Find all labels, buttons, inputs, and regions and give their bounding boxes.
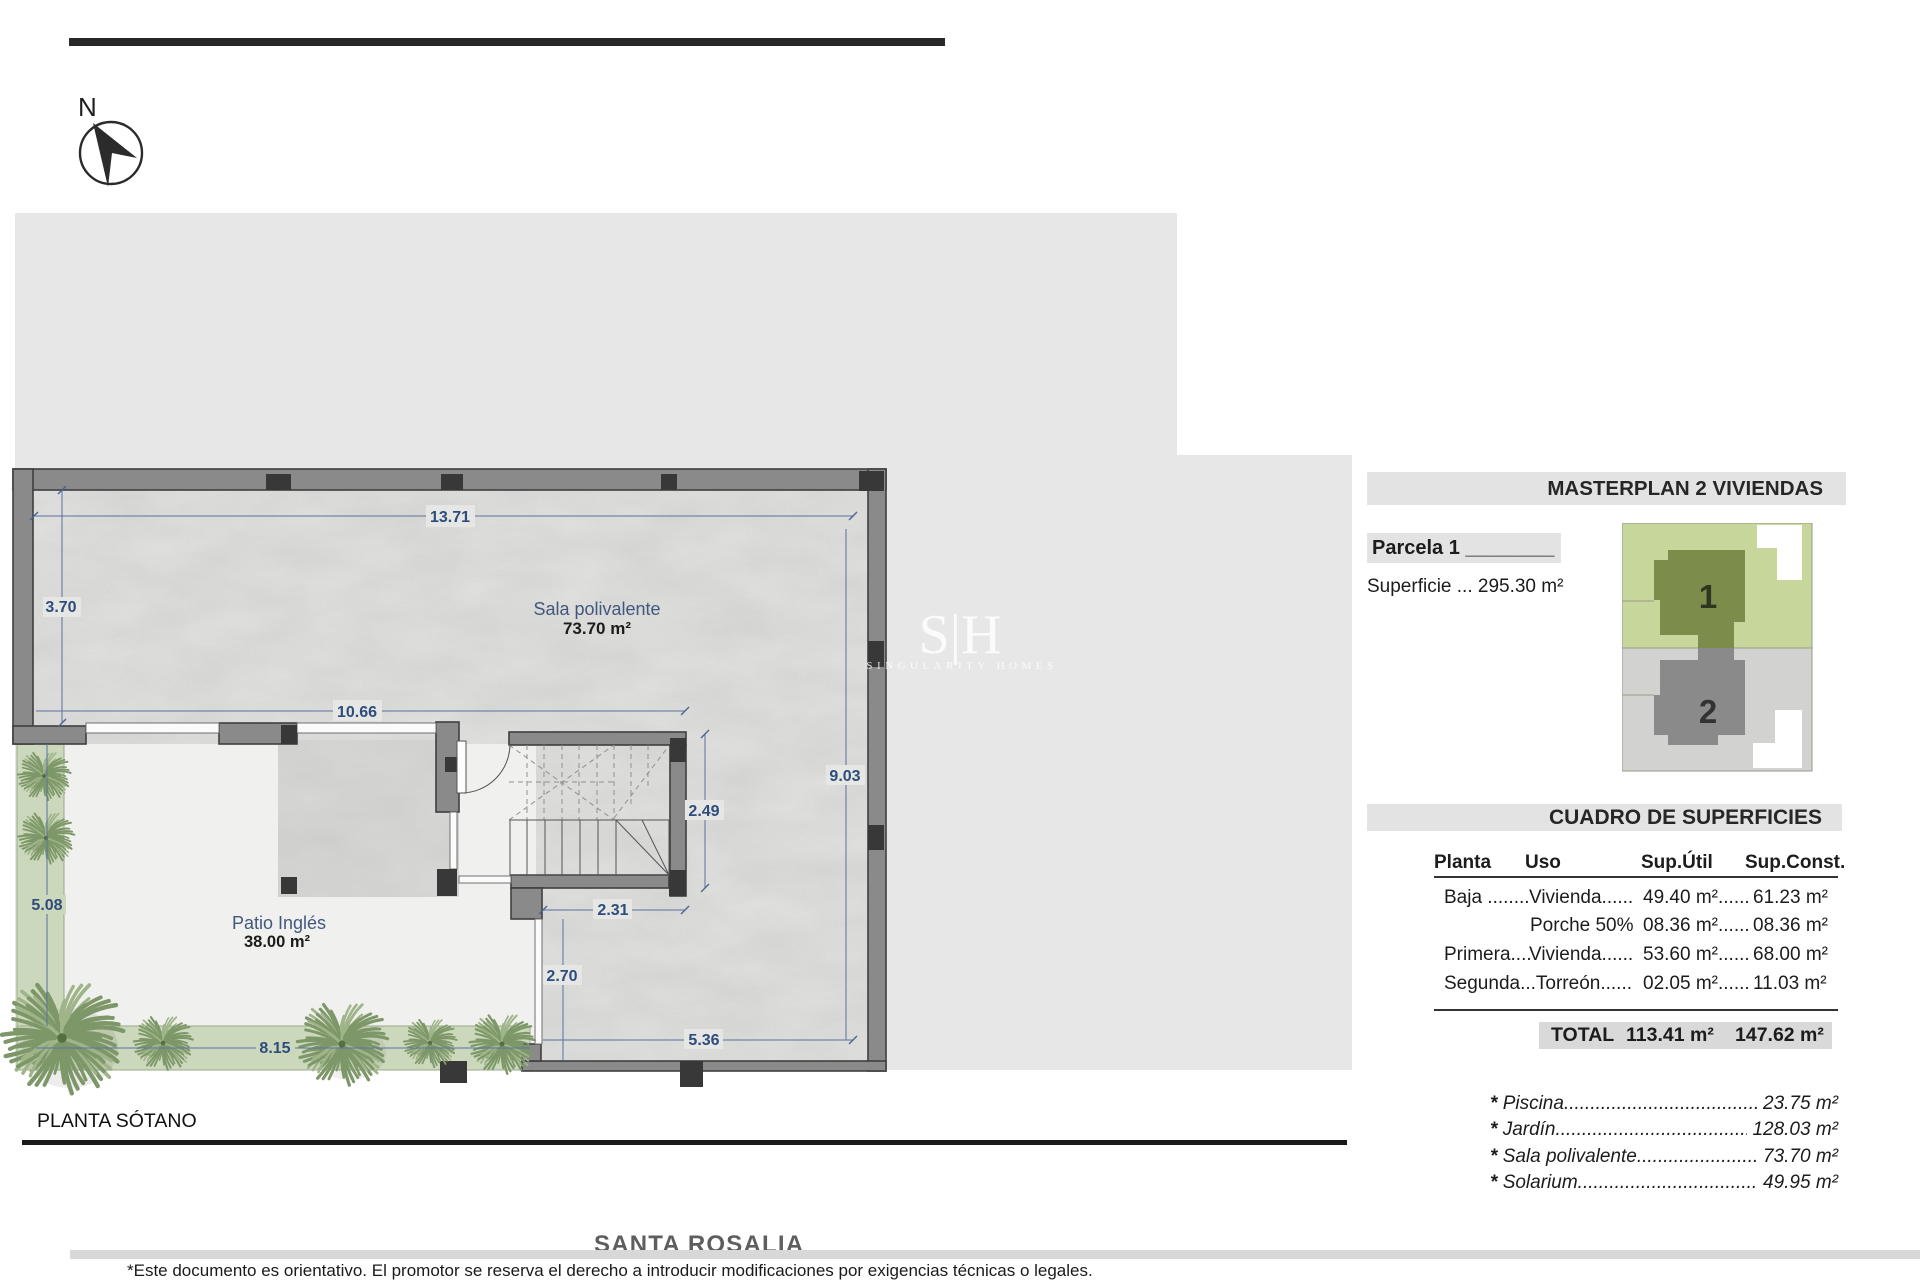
svg-text:1: 1: [1699, 578, 1717, 615]
svg-text:2.49: 2.49: [688, 803, 719, 820]
svg-text:Sala polivalente: Sala polivalente: [533, 599, 660, 619]
svg-text:S|H: S|H: [919, 604, 1002, 666]
svg-text:SINGULARITY HOMES: SINGULARITY HOMES: [866, 660, 1057, 672]
svg-text:3.70: 3.70: [45, 599, 76, 616]
svg-text:10.66: 10.66: [337, 704, 377, 721]
svg-text:8.15: 8.15: [259, 1040, 290, 1057]
svg-text:5.08: 5.08: [31, 897, 62, 914]
svg-text:N: N: [78, 92, 97, 122]
svg-text:2: 2: [1699, 693, 1717, 730]
svg-text:9.03: 9.03: [829, 768, 860, 785]
svg-text:13.71: 13.71: [430, 509, 470, 526]
svg-text:2.70: 2.70: [546, 968, 577, 985]
svg-text:2.31: 2.31: [597, 902, 628, 919]
svg-text:73.70 m²: 73.70 m²: [563, 619, 631, 638]
svg-text:38.00 m²: 38.00 m²: [244, 933, 311, 951]
svg-text:Patio Inglés: Patio Inglés: [232, 913, 326, 933]
svg-text:5.36: 5.36: [688, 1032, 719, 1049]
